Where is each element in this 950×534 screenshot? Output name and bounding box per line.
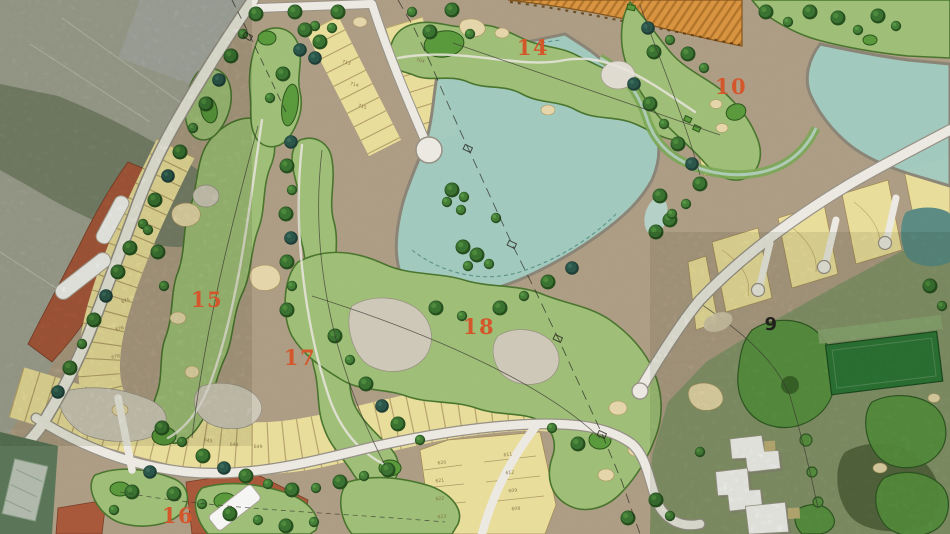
master-plan-svg: 14 10 15 17 18 16 9 713 714 715 704 675 …: [0, 0, 950, 534]
lot-number: 623: [437, 514, 446, 521]
hole-18-label: 18: [463, 314, 495, 339]
lot-number: 612: [505, 470, 514, 477]
hole-16-label: 16: [162, 503, 194, 528]
golf-course-master-plan: 14 10 15 17 18 16 9 713 714 715 704 675 …: [0, 0, 950, 534]
hole-17-label: 17: [284, 345, 316, 370]
lot-number: 649: [254, 444, 263, 450]
lot-number: 621: [435, 478, 444, 485]
lot-number: 611: [503, 452, 512, 459]
hole-9-label: 9: [764, 314, 777, 335]
hole-15-label: 15: [191, 287, 223, 312]
lot-number: 608: [511, 506, 520, 513]
lot-number: 620: [437, 460, 446, 467]
lot-number: 648: [229, 442, 238, 449]
hole-10-label: 10: [715, 74, 747, 99]
lot-number: 609: [508, 488, 517, 495]
lot-number: 645: [203, 438, 212, 445]
hole-14-label: 14: [517, 35, 549, 60]
lot-number: 622: [435, 496, 444, 503]
